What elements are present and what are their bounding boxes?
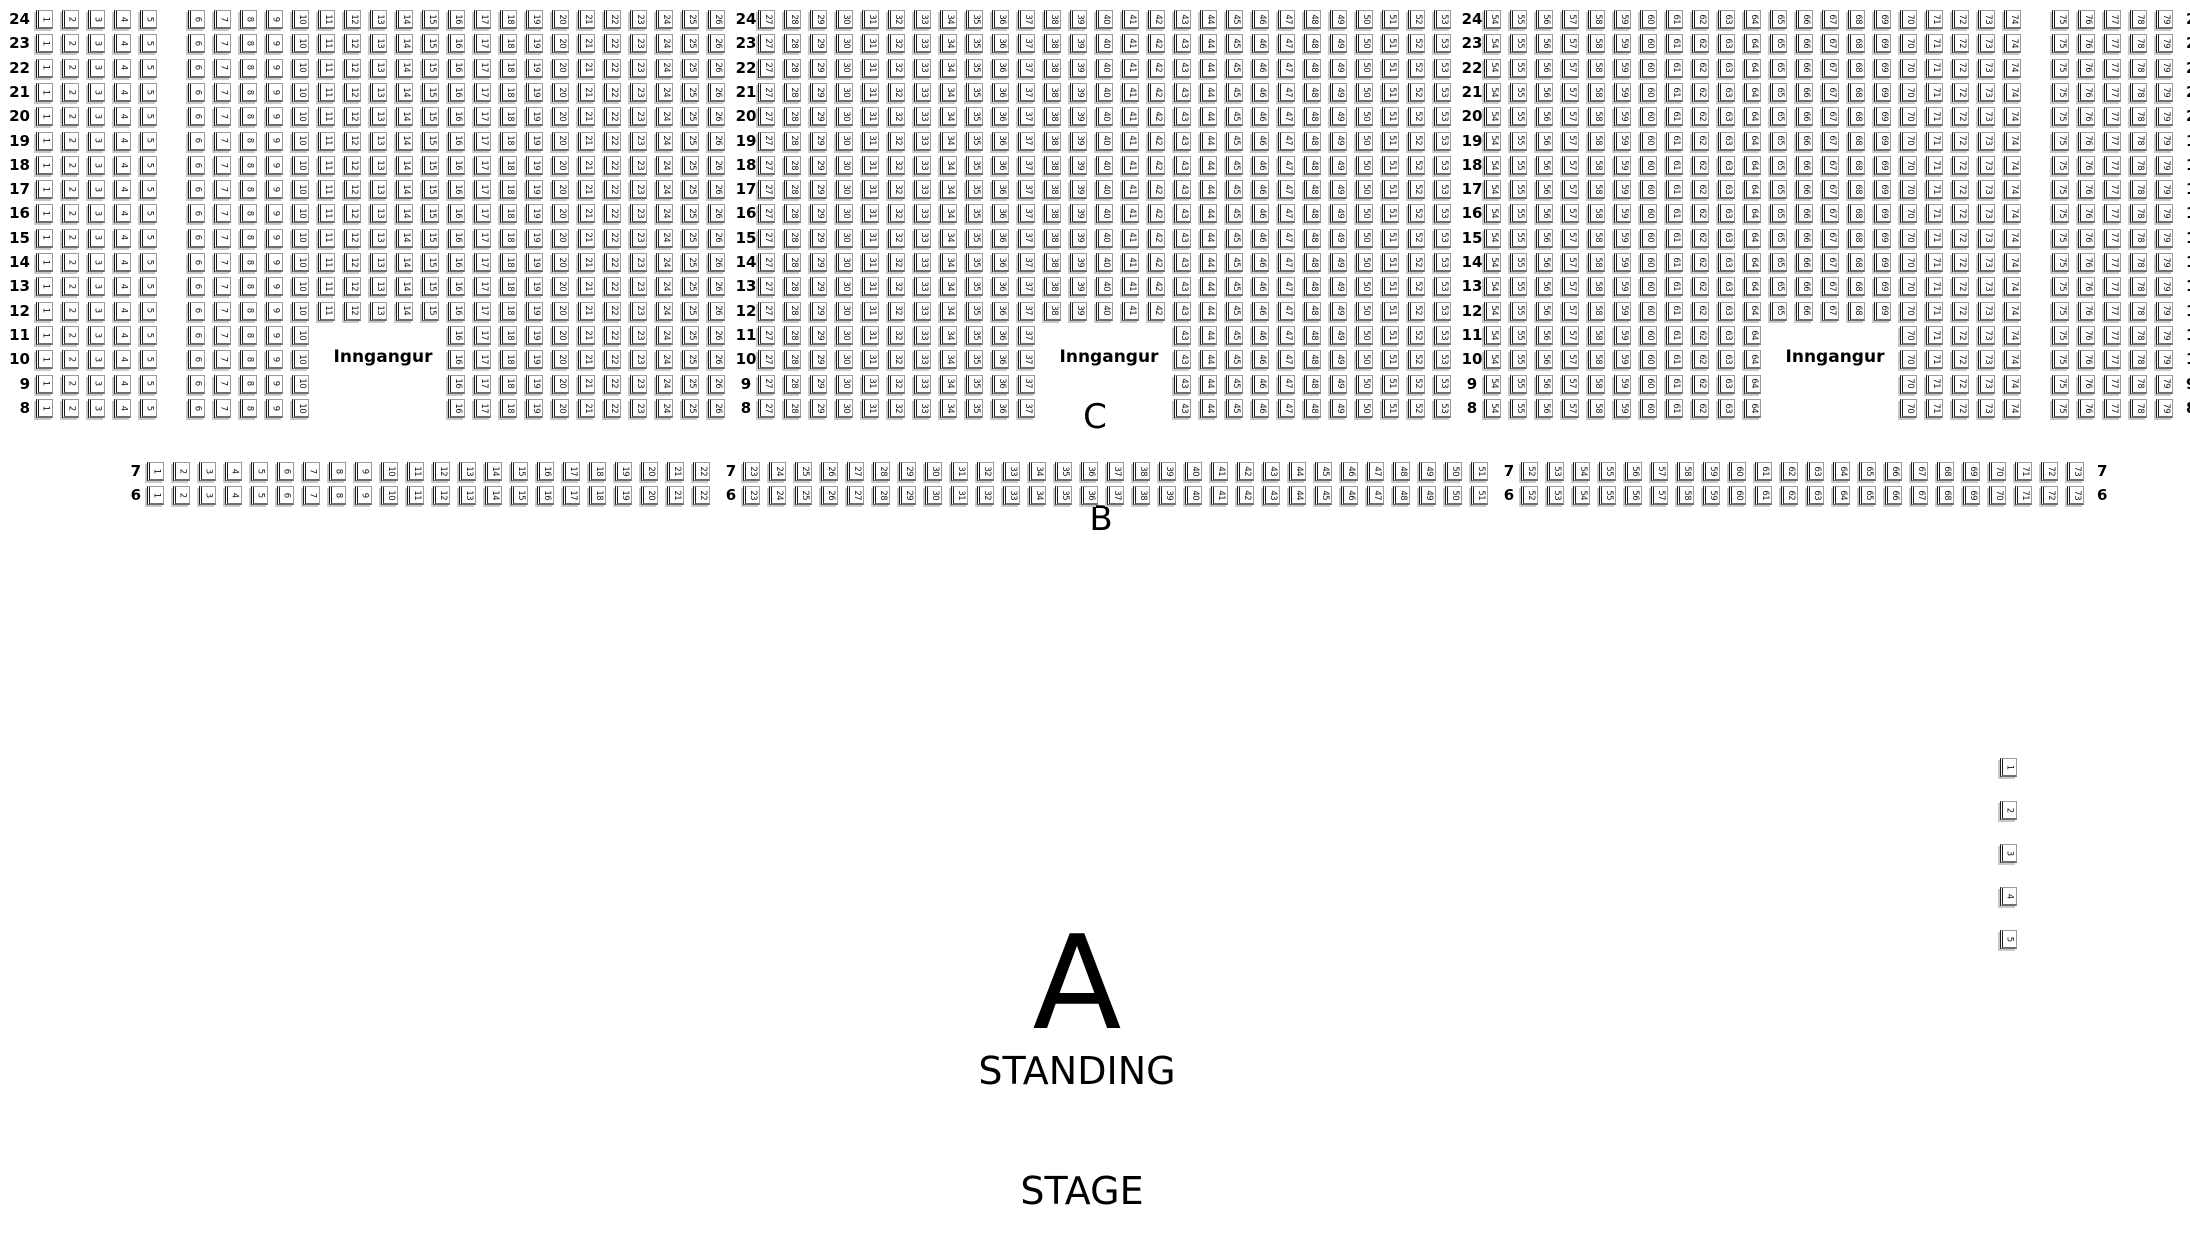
seat-13-55[interactable]: 55 <box>1510 277 1527 296</box>
seat-18-73[interactable]: 73 <box>1978 156 1995 175</box>
seat-18-8[interactable]: 8 <box>240 156 257 175</box>
seat-6-25[interactable]: 25 <box>795 486 812 505</box>
seat-14-4[interactable]: 4 <box>114 253 131 272</box>
seat-14-71[interactable]: 71 <box>1926 253 1943 272</box>
seat-8-60[interactable]: 60 <box>1640 399 1657 418</box>
seat-16-26[interactable]: 26 <box>708 204 725 223</box>
seat-23-78[interactable]: 78 <box>2130 34 2147 53</box>
seat-20-78[interactable]: 78 <box>2130 107 2147 126</box>
seat-23-50[interactable]: 50 <box>1356 34 1373 53</box>
seat-20-28[interactable]: 28 <box>784 107 801 126</box>
seat-7-10[interactable]: 10 <box>381 462 398 481</box>
seat-21-79[interactable]: 79 <box>2156 83 2173 102</box>
seat-9-27[interactable]: 27 <box>758 375 775 394</box>
seat-18-34[interactable]: 34 <box>940 156 957 175</box>
seat-16-27[interactable]: 27 <box>758 204 775 223</box>
seat-14-55[interactable]: 55 <box>1510 253 1527 272</box>
seat-8-1[interactable]: 1 <box>36 399 53 418</box>
seat-14-16[interactable]: 16 <box>448 253 465 272</box>
seat-18-14[interactable]: 14 <box>396 156 413 175</box>
seat-18-76[interactable]: 76 <box>2078 156 2095 175</box>
seat-10-56[interactable]: 56 <box>1536 350 1553 369</box>
seat-19-44[interactable]: 44 <box>1200 132 1217 151</box>
seat-12-53[interactable]: 53 <box>1434 302 1451 321</box>
seat-17-11[interactable]: 11 <box>318 180 335 199</box>
seat-15-26[interactable]: 26 <box>708 229 725 248</box>
seat-11-49[interactable]: 49 <box>1330 326 1347 345</box>
seat-24-41[interactable]: 41 <box>1122 10 1139 29</box>
seat-17-48[interactable]: 48 <box>1304 180 1321 199</box>
seat-9-58[interactable]: 58 <box>1588 375 1605 394</box>
seat-14-66[interactable]: 66 <box>1796 253 1813 272</box>
seat-10-75[interactable]: 75 <box>2052 350 2069 369</box>
seat-20-55[interactable]: 55 <box>1510 107 1527 126</box>
section-a-label[interactable]: A <box>1033 918 1122 1048</box>
seat-24-11[interactable]: 11 <box>318 10 335 29</box>
seat-11-62[interactable]: 62 <box>1692 326 1709 345</box>
seat-20-75[interactable]: 75 <box>2052 107 2069 126</box>
seat-12-13[interactable]: 13 <box>370 302 387 321</box>
seat-19-57[interactable]: 57 <box>1562 132 1579 151</box>
seat-13-64[interactable]: 64 <box>1744 277 1761 296</box>
seat-22-19[interactable]: 19 <box>526 59 543 78</box>
seat-6-11[interactable]: 11 <box>407 486 424 505</box>
seat-22-6[interactable]: 6 <box>188 59 205 78</box>
seat-24-9[interactable]: 9 <box>266 10 283 29</box>
seat-11-28[interactable]: 28 <box>784 326 801 345</box>
seat-14-34[interactable]: 34 <box>940 253 957 272</box>
seat-15-65[interactable]: 65 <box>1770 229 1787 248</box>
seat-15-27[interactable]: 27 <box>758 229 775 248</box>
seat-7-20[interactable]: 20 <box>641 462 658 481</box>
seat-17-37[interactable]: 37 <box>1018 180 1035 199</box>
seat-9-50[interactable]: 50 <box>1356 375 1373 394</box>
seat-8-77[interactable]: 77 <box>2104 399 2121 418</box>
seat-23-59[interactable]: 59 <box>1614 34 1631 53</box>
seat-8-32[interactable]: 32 <box>888 399 905 418</box>
seat-18-64[interactable]: 64 <box>1744 156 1761 175</box>
seat-17-59[interactable]: 59 <box>1614 180 1631 199</box>
seat-19-55[interactable]: 55 <box>1510 132 1527 151</box>
seat-19-8[interactable]: 8 <box>240 132 257 151</box>
seat-21-22[interactable]: 22 <box>604 83 621 102</box>
seat-24-30[interactable]: 30 <box>836 10 853 29</box>
seat-13-28[interactable]: 28 <box>784 277 801 296</box>
seat-9-10[interactable]: 10 <box>292 375 309 394</box>
seat-7-40[interactable]: 40 <box>1185 462 1202 481</box>
seat-16-7[interactable]: 7 <box>214 204 231 223</box>
seat-24-70[interactable]: 70 <box>1900 10 1917 29</box>
seat-24-51[interactable]: 51 <box>1382 10 1399 29</box>
seat-16-10[interactable]: 10 <box>292 204 309 223</box>
seat-7-26[interactable]: 26 <box>821 462 838 481</box>
seat-23-73[interactable]: 73 <box>1978 34 1995 53</box>
seat-12-10[interactable]: 10 <box>292 302 309 321</box>
seat-7-60[interactable]: 60 <box>1729 462 1746 481</box>
seat-12-30[interactable]: 30 <box>836 302 853 321</box>
seat-11-64[interactable]: 64 <box>1744 326 1761 345</box>
seat-17-18[interactable]: 18 <box>500 180 517 199</box>
seat-24-12[interactable]: 12 <box>344 10 361 29</box>
seat-9-7[interactable]: 7 <box>214 375 231 394</box>
seat-13-30[interactable]: 30 <box>836 277 853 296</box>
seat-24-32[interactable]: 32 <box>888 10 905 29</box>
seat-18-62[interactable]: 62 <box>1692 156 1709 175</box>
seat-11-57[interactable]: 57 <box>1562 326 1579 345</box>
seat-13-11[interactable]: 11 <box>318 277 335 296</box>
seat-15-16[interactable]: 16 <box>448 229 465 248</box>
seat-11-10[interactable]: 10 <box>292 326 309 345</box>
seat-12-38[interactable]: 38 <box>1044 302 1061 321</box>
seat-16-18[interactable]: 18 <box>500 204 517 223</box>
seat-11-19[interactable]: 19 <box>526 326 543 345</box>
seat-19-79[interactable]: 79 <box>2156 132 2173 151</box>
seat-12-49[interactable]: 49 <box>1330 302 1347 321</box>
seat-24-67[interactable]: 67 <box>1822 10 1839 29</box>
seat-17-32[interactable]: 32 <box>888 180 905 199</box>
seat-11-16[interactable]: 16 <box>448 326 465 345</box>
seat-20-25[interactable]: 25 <box>682 107 699 126</box>
seat-17-73[interactable]: 73 <box>1978 180 1995 199</box>
seat-8-74[interactable]: 74 <box>2004 399 2021 418</box>
seat-6-44[interactable]: 44 <box>1289 486 1306 505</box>
seat-13-19[interactable]: 19 <box>526 277 543 296</box>
seat-9-59[interactable]: 59 <box>1614 375 1631 394</box>
seat-7-6[interactable]: 6 <box>277 462 294 481</box>
seat-13-45[interactable]: 45 <box>1226 277 1243 296</box>
seat-8-78[interactable]: 78 <box>2130 399 2147 418</box>
seat-9-5[interactable]: 5 <box>140 375 157 394</box>
seat-13-10[interactable]: 10 <box>292 277 309 296</box>
seat-24-47[interactable]: 47 <box>1278 10 1295 29</box>
seat-7-37[interactable]: 37 <box>1107 462 1124 481</box>
seat-9-36[interactable]: 36 <box>992 375 1009 394</box>
seat-12-55[interactable]: 55 <box>1510 302 1527 321</box>
seat-21-6[interactable]: 6 <box>188 83 205 102</box>
seat-17-64[interactable]: 64 <box>1744 180 1761 199</box>
seat-22-47[interactable]: 47 <box>1278 59 1295 78</box>
seat-18-60[interactable]: 60 <box>1640 156 1657 175</box>
seat-17-45[interactable]: 45 <box>1226 180 1243 199</box>
seat-16-37[interactable]: 37 <box>1018 204 1035 223</box>
seat-16-22[interactable]: 22 <box>604 204 621 223</box>
seat-21-64[interactable]: 64 <box>1744 83 1761 102</box>
seat-15-52[interactable]: 52 <box>1408 229 1425 248</box>
seat-13-49[interactable]: 49 <box>1330 277 1347 296</box>
seat-23-13[interactable]: 13 <box>370 34 387 53</box>
seat-17-62[interactable]: 62 <box>1692 180 1709 199</box>
seat-6-68[interactable]: 68 <box>1937 486 1954 505</box>
seat-19-66[interactable]: 66 <box>1796 132 1813 151</box>
seat-9-60[interactable]: 60 <box>1640 375 1657 394</box>
seat-12-59[interactable]: 59 <box>1614 302 1631 321</box>
seat-23-28[interactable]: 28 <box>784 34 801 53</box>
seat-18-24[interactable]: 24 <box>656 156 673 175</box>
seat-19-42[interactable]: 42 <box>1148 132 1165 151</box>
seat-18-13[interactable]: 13 <box>370 156 387 175</box>
seat-21-30[interactable]: 30 <box>836 83 853 102</box>
seat-8-55[interactable]: 55 <box>1510 399 1527 418</box>
seat-7-21[interactable]: 21 <box>667 462 684 481</box>
seat-24-17[interactable]: 17 <box>474 10 491 29</box>
seat-10-34[interactable]: 34 <box>940 350 957 369</box>
seat-13-37[interactable]: 37 <box>1018 277 1035 296</box>
seat-18-10[interactable]: 10 <box>292 156 309 175</box>
seat-18-33[interactable]: 33 <box>914 156 931 175</box>
seat-24-27[interactable]: 27 <box>758 10 775 29</box>
seat-6-22[interactable]: 22 <box>693 486 710 505</box>
seat-10-20[interactable]: 20 <box>552 350 569 369</box>
seat-16-45[interactable]: 45 <box>1226 204 1243 223</box>
seat-6-40[interactable]: 40 <box>1185 486 1202 505</box>
seat-24-53[interactable]: 53 <box>1434 10 1451 29</box>
seat-10-70[interactable]: 70 <box>1900 350 1917 369</box>
seat-17-9[interactable]: 9 <box>266 180 283 199</box>
seat-9-3[interactable]: 3 <box>88 375 105 394</box>
seat-11-6[interactable]: 6 <box>188 326 205 345</box>
seat-18-38[interactable]: 38 <box>1044 156 1061 175</box>
seat-20-57[interactable]: 57 <box>1562 107 1579 126</box>
seat-21-37[interactable]: 37 <box>1018 83 1035 102</box>
seat-19-14[interactable]: 14 <box>396 132 413 151</box>
seat-12-6[interactable]: 6 <box>188 302 205 321</box>
seat-14-64[interactable]: 64 <box>1744 253 1761 272</box>
seat-10-46[interactable]: 46 <box>1252 350 1269 369</box>
seat-21-31[interactable]: 31 <box>862 83 879 102</box>
seat-17-38[interactable]: 38 <box>1044 180 1061 199</box>
seat-6-3[interactable]: 3 <box>199 486 216 505</box>
seat-14-72[interactable]: 72 <box>1952 253 1969 272</box>
seat-23-44[interactable]: 44 <box>1200 34 1217 53</box>
seat-19-21[interactable]: 21 <box>578 132 595 151</box>
seat-23-18[interactable]: 18 <box>500 34 517 53</box>
seat-15-72[interactable]: 72 <box>1952 229 1969 248</box>
seat-6-60[interactable]: 60 <box>1729 486 1746 505</box>
seat-7-15[interactable]: 15 <box>511 462 528 481</box>
seat-9-19[interactable]: 19 <box>526 375 543 394</box>
seat-7-38[interactable]: 38 <box>1133 462 1150 481</box>
seat-17-33[interactable]: 33 <box>914 180 931 199</box>
seat-21-26[interactable]: 26 <box>708 83 725 102</box>
seat-13-23[interactable]: 23 <box>630 277 647 296</box>
seat-13-17[interactable]: 17 <box>474 277 491 296</box>
seat-21-47[interactable]: 47 <box>1278 83 1295 102</box>
seat-6-46[interactable]: 46 <box>1341 486 1358 505</box>
seat-7-19[interactable]: 19 <box>615 462 632 481</box>
seat-19-3[interactable]: 3 <box>88 132 105 151</box>
seat-16-43[interactable]: 43 <box>1174 204 1191 223</box>
seat-22-25[interactable]: 25 <box>682 59 699 78</box>
seat-23-20[interactable]: 20 <box>552 34 569 53</box>
seat-16-21[interactable]: 21 <box>578 204 595 223</box>
seat-17-14[interactable]: 14 <box>396 180 413 199</box>
seat-14-1[interactable]: 1 <box>36 253 53 272</box>
seat-21-38[interactable]: 38 <box>1044 83 1061 102</box>
seat-14-79[interactable]: 79 <box>2156 253 2173 272</box>
seat-10-43[interactable]: 43 <box>1174 350 1191 369</box>
seat-19-45[interactable]: 45 <box>1226 132 1243 151</box>
seat-15-39[interactable]: 39 <box>1070 229 1087 248</box>
seat-17-31[interactable]: 31 <box>862 180 879 199</box>
seat-8-70[interactable]: 70 <box>1900 399 1917 418</box>
seat-12-11[interactable]: 11 <box>318 302 335 321</box>
seat-14-62[interactable]: 62 <box>1692 253 1709 272</box>
seat-15-68[interactable]: 68 <box>1848 229 1865 248</box>
seat-21-17[interactable]: 17 <box>474 83 491 102</box>
seat-22-41[interactable]: 41 <box>1122 59 1139 78</box>
seat-10-1[interactable]: 1 <box>36 350 53 369</box>
seat-22-58[interactable]: 58 <box>1588 59 1605 78</box>
seat-15-38[interactable]: 38 <box>1044 229 1061 248</box>
seat-16-54[interactable]: 54 <box>1484 204 1501 223</box>
seat-13-56[interactable]: 56 <box>1536 277 1553 296</box>
seat-8-18[interactable]: 18 <box>500 399 517 418</box>
seat-6-18[interactable]: 18 <box>589 486 606 505</box>
seat-19-22[interactable]: 22 <box>604 132 621 151</box>
seat-17-16[interactable]: 16 <box>448 180 465 199</box>
seat-17-65[interactable]: 65 <box>1770 180 1787 199</box>
seat-17-36[interactable]: 36 <box>992 180 1009 199</box>
seat-12-79[interactable]: 79 <box>2156 302 2173 321</box>
seat-10-25[interactable]: 25 <box>682 350 699 369</box>
seat-20-47[interactable]: 47 <box>1278 107 1295 126</box>
seat-6-50[interactable]: 50 <box>1445 486 1462 505</box>
seat-12-28[interactable]: 28 <box>784 302 801 321</box>
seat-14-43[interactable]: 43 <box>1174 253 1191 272</box>
seat-22-66[interactable]: 66 <box>1796 59 1813 78</box>
seat-14-78[interactable]: 78 <box>2130 253 2147 272</box>
seat-13-41[interactable]: 41 <box>1122 277 1139 296</box>
seat-7-4[interactable]: 4 <box>225 462 242 481</box>
seat-18-2[interactable]: 2 <box>62 156 79 175</box>
seat-13-46[interactable]: 46 <box>1252 277 1269 296</box>
seat-23-12[interactable]: 12 <box>344 34 361 53</box>
seat-23-22[interactable]: 22 <box>604 34 621 53</box>
seat-15-49[interactable]: 49 <box>1330 229 1347 248</box>
seat-7-48[interactable]: 48 <box>1393 462 1410 481</box>
seat-18-9[interactable]: 9 <box>266 156 283 175</box>
seat-12-45[interactable]: 45 <box>1226 302 1243 321</box>
seat-10-51[interactable]: 51 <box>1382 350 1399 369</box>
seat-8-5[interactable]: 5 <box>140 399 157 418</box>
seat-22-37[interactable]: 37 <box>1018 59 1035 78</box>
seat-11-9[interactable]: 9 <box>266 326 283 345</box>
seat-22-13[interactable]: 13 <box>370 59 387 78</box>
seat-11-59[interactable]: 59 <box>1614 326 1631 345</box>
seat-12-21[interactable]: 21 <box>578 302 595 321</box>
seat-20-72[interactable]: 72 <box>1952 107 1969 126</box>
seat-23-48[interactable]: 48 <box>1304 34 1321 53</box>
seat-13-69[interactable]: 69 <box>1874 277 1891 296</box>
seat-10-23[interactable]: 23 <box>630 350 647 369</box>
seat-17-76[interactable]: 76 <box>2078 180 2095 199</box>
seat-23-35[interactable]: 35 <box>966 34 983 53</box>
seat-19-54[interactable]: 54 <box>1484 132 1501 151</box>
seat-10-44[interactable]: 44 <box>1200 350 1217 369</box>
seat-10-6[interactable]: 6 <box>188 350 205 369</box>
seat-21-76[interactable]: 76 <box>2078 83 2095 102</box>
seat-7-53[interactable]: 53 <box>1547 462 1564 481</box>
seat-19-62[interactable]: 62 <box>1692 132 1709 151</box>
seat-6-47[interactable]: 47 <box>1367 486 1384 505</box>
seat-20-51[interactable]: 51 <box>1382 107 1399 126</box>
seat-8-34[interactable]: 34 <box>940 399 957 418</box>
seat-12-77[interactable]: 77 <box>2104 302 2121 321</box>
seat-15-17[interactable]: 17 <box>474 229 491 248</box>
seat-24-59[interactable]: 59 <box>1614 10 1631 29</box>
seat-6-19[interactable]: 19 <box>615 486 632 505</box>
seat-12-44[interactable]: 44 <box>1200 302 1217 321</box>
seat-15-53[interactable]: 53 <box>1434 229 1451 248</box>
seat-23-39[interactable]: 39 <box>1070 34 1087 53</box>
seat-13-58[interactable]: 58 <box>1588 277 1605 296</box>
seat-15-23[interactable]: 23 <box>630 229 647 248</box>
seat-22-72[interactable]: 72 <box>1952 59 1969 78</box>
seat-21-41[interactable]: 41 <box>1122 83 1139 102</box>
seat-16-3[interactable]: 3 <box>88 204 105 223</box>
seat-16-28[interactable]: 28 <box>784 204 801 223</box>
seat-19-39[interactable]: 39 <box>1070 132 1087 151</box>
seat-20-16[interactable]: 16 <box>448 107 465 126</box>
seat-23-77[interactable]: 77 <box>2104 34 2121 53</box>
seat-6-65[interactable]: 65 <box>1859 486 1876 505</box>
seat-8-31[interactable]: 31 <box>862 399 879 418</box>
seat-10-59[interactable]: 59 <box>1614 350 1631 369</box>
seat-24-22[interactable]: 22 <box>604 10 621 29</box>
seat-8-53[interactable]: 53 <box>1434 399 1451 418</box>
seat-11-31[interactable]: 31 <box>862 326 879 345</box>
seat-21-46[interactable]: 46 <box>1252 83 1269 102</box>
seat-22-76[interactable]: 76 <box>2078 59 2095 78</box>
seat-14-76[interactable]: 76 <box>2078 253 2095 272</box>
seat-6-34[interactable]: 34 <box>1029 486 1046 505</box>
seat-16-31[interactable]: 31 <box>862 204 879 223</box>
seat-12-34[interactable]: 34 <box>940 302 957 321</box>
seat-15-30[interactable]: 30 <box>836 229 853 248</box>
seat-22-38[interactable]: 38 <box>1044 59 1061 78</box>
seat-11-1[interactable]: 1 <box>36 326 53 345</box>
seat-22-31[interactable]: 31 <box>862 59 879 78</box>
seat-23-15[interactable]: 15 <box>422 34 439 53</box>
side-seat-5[interactable]: 5 <box>2000 930 2017 949</box>
seat-18-31[interactable]: 31 <box>862 156 879 175</box>
seat-23-64[interactable]: 64 <box>1744 34 1761 53</box>
seat-13-51[interactable]: 51 <box>1382 277 1399 296</box>
seat-8-16[interactable]: 16 <box>448 399 465 418</box>
seat-14-68[interactable]: 68 <box>1848 253 1865 272</box>
seat-10-60[interactable]: 60 <box>1640 350 1657 369</box>
seat-10-71[interactable]: 71 <box>1926 350 1943 369</box>
seat-12-17[interactable]: 17 <box>474 302 491 321</box>
seat-16-79[interactable]: 79 <box>2156 204 2173 223</box>
seat-10-50[interactable]: 50 <box>1356 350 1373 369</box>
seat-19-28[interactable]: 28 <box>784 132 801 151</box>
seat-8-45[interactable]: 45 <box>1226 399 1243 418</box>
seat-16-1[interactable]: 1 <box>36 204 53 223</box>
seat-10-52[interactable]: 52 <box>1408 350 1425 369</box>
seat-12-78[interactable]: 78 <box>2130 302 2147 321</box>
seat-15-6[interactable]: 6 <box>188 229 205 248</box>
seat-21-70[interactable]: 70 <box>1900 83 1917 102</box>
seat-17-35[interactable]: 35 <box>966 180 983 199</box>
seat-20-76[interactable]: 76 <box>2078 107 2095 126</box>
seat-10-7[interactable]: 7 <box>214 350 231 369</box>
seat-24-35[interactable]: 35 <box>966 10 983 29</box>
seat-13-66[interactable]: 66 <box>1796 277 1813 296</box>
seat-17-56[interactable]: 56 <box>1536 180 1553 199</box>
seat-20-7[interactable]: 7 <box>214 107 231 126</box>
seat-14-63[interactable]: 63 <box>1718 253 1735 272</box>
